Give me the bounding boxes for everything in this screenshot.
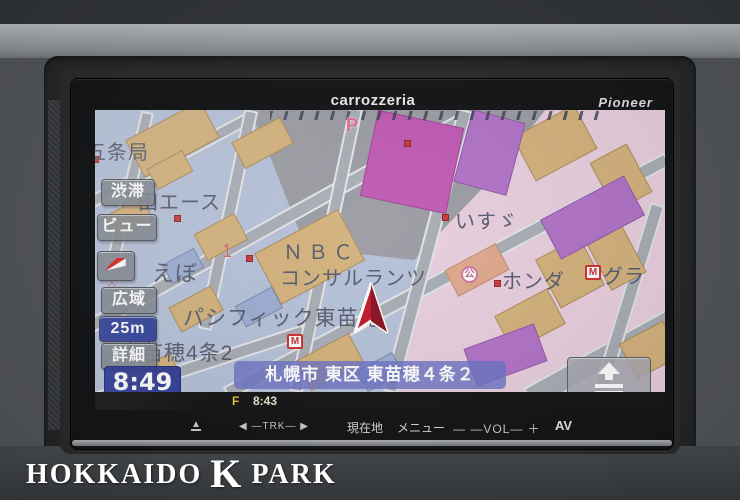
clipped-map-text [270,111,600,120]
scale-indicator[interactable]: 25m [99,316,157,342]
pioneer-logo: Pioneer [598,95,653,110]
building [194,213,249,261]
poi-dot [404,140,411,147]
watermark-part1: HOKKAIDO [26,459,202,490]
mansion-icon: M [287,334,303,349]
av-time: 8:43 [253,394,277,408]
parking-icon: P [346,115,358,136]
av-status-strip: F 8:43 [95,392,665,410]
view-button[interactable]: ビュー [97,214,157,241]
map-label-block-number: 1 [222,241,233,262]
dashboard-top [0,0,740,26]
current-position-cursor [352,282,390,336]
poi-dot [494,280,501,287]
watermark-part3: PARK [251,459,336,490]
map-label-ebo: えぼ [152,256,198,288]
bezel-chrome-strip [72,440,672,446]
building [360,110,464,214]
map-screen[interactable]: P ☆ M M 公 五条局 田エース えぼ 1 ＮＢＣ コンサルランツ パシフィ… [95,110,665,410]
address-bar: 札幌市 東区 東苗穂４条２ [234,361,506,389]
map-label-isuzu: いすゞ [455,205,518,234]
map-label-gura: グラ [603,260,645,289]
map-label-pacific: パシフィック東苗穂 [183,302,381,332]
map-label-nbc: ＮＢＣ [283,236,358,265]
heading-arrow-icon [102,255,130,275]
dashboard-trim [0,24,740,60]
av-source-indicator: F [232,394,239,408]
map-label-post-office: 五条局 [95,136,149,165]
wide-area-button[interactable]: 広域 [101,287,157,314]
poi-dot [246,255,253,262]
park-icon: 公 [461,266,478,283]
mansion-icon: M [585,265,601,280]
menu-button[interactable]: メニュー [397,419,445,436]
poi-dot [442,214,449,221]
traffic-button[interactable]: 渋滞 [101,179,155,206]
current-location-button[interactable]: 現在地 [347,419,383,436]
poi-dot [174,215,181,222]
av-button[interactable]: AV [555,418,572,433]
carrozzeria-logo: carrozzeria [71,92,675,109]
track-seek-buttons[interactable]: ◀ —TRK— ▶ [239,421,309,432]
eject-button[interactable]: ▲ [191,419,201,431]
map-label-honda: ホンダ [502,265,565,294]
heading-indicator-button[interactable] [97,251,135,281]
volume-buttons[interactable]: — —VOL— ＋ [453,420,541,437]
watermark-part2: K [210,451,243,496]
watermark: HOKKAIDO K PARK [26,450,337,497]
